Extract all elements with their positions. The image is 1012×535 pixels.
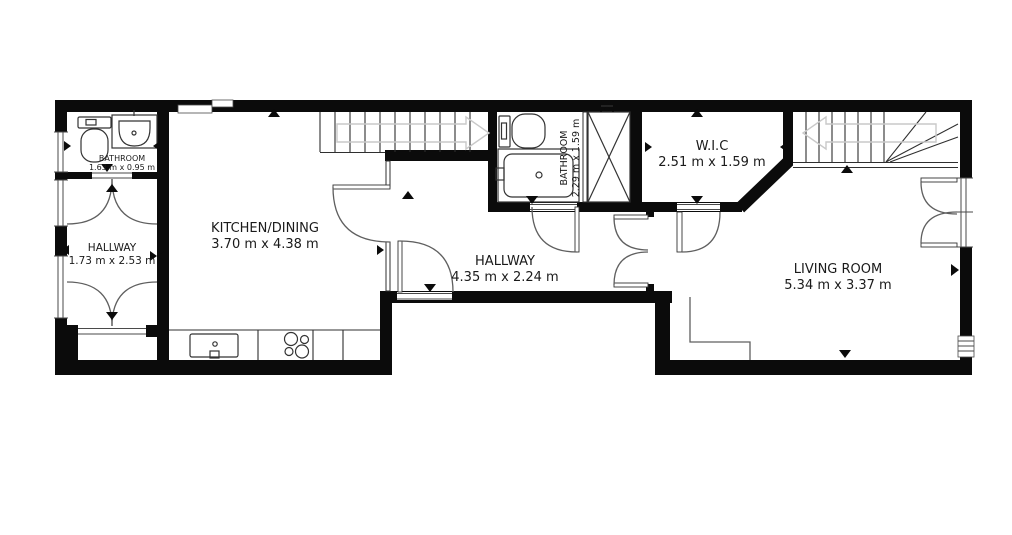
stair-direction-arrow-icon <box>337 117 489 149</box>
threshold <box>957 178 973 247</box>
room-name: LIVING ROOM <box>784 262 891 278</box>
shower-icon <box>588 106 630 202</box>
room-dimensions: 1.73 m x 2.53 m <box>69 255 156 268</box>
door-icon <box>333 185 390 242</box>
stair-direction-arrow-icon <box>803 117 936 149</box>
floor-plan: BATHROOM 1.63 m x 0.95 m HALLWAY 1.73 m … <box>0 0 1012 535</box>
threshold <box>530 203 577 211</box>
french-door-icon <box>921 178 957 247</box>
arrow-down-icon <box>106 312 118 320</box>
window-icon <box>54 132 68 172</box>
kitchen-sink-icon <box>190 334 238 358</box>
dimension-tick-icon <box>377 245 384 255</box>
room-name: HALLWAY <box>451 254 558 270</box>
threshold <box>78 326 146 336</box>
room-label-kitchen: KITCHEN/DINING 3.70 m x 4.38 m <box>211 221 319 254</box>
room-dimensions: 5.34 m x 3.37 m <box>784 278 891 294</box>
threshold <box>677 203 720 211</box>
room-name: KITCHEN/DINING <box>211 221 319 237</box>
arrow-up-icon <box>841 165 853 173</box>
dimension-tick-icon <box>645 142 652 152</box>
room-dimensions: 2.51 m x 1.59 m <box>658 155 765 171</box>
room-label-wic: W.I.C 2.51 m x 1.59 m <box>658 139 765 172</box>
kitchen-counter <box>169 330 380 360</box>
sink-icon <box>112 110 157 148</box>
room-label-hallway1: HALLWAY 1.73 m x 2.53 m <box>69 242 156 268</box>
stove-icon <box>285 333 309 359</box>
room-dimensions: 2.29 m x 1.59 m <box>571 119 583 198</box>
window-icon <box>54 180 68 226</box>
arrow-down-icon <box>424 284 436 292</box>
double-door-icon <box>614 215 648 287</box>
room-name: HALLWAY <box>69 242 156 255</box>
toilet-icon <box>499 114 545 148</box>
threshold <box>92 171 132 180</box>
staircase-right <box>793 112 958 168</box>
door-icon <box>677 212 720 252</box>
room-name: W.I.C <box>658 139 765 155</box>
room-label-bathroom2: BATHROOM 2.29 m x 1.59 m <box>559 119 583 198</box>
room-label-hallway2: HALLWAY 4.35 m x 2.24 m <box>451 254 558 287</box>
door-icon <box>532 207 579 252</box>
staircase-left <box>320 112 489 153</box>
room-label-living: LIVING ROOM 5.34 m x 3.37 m <box>784 262 891 295</box>
arrow-down-icon <box>839 350 851 358</box>
room-name: BATHROOM <box>559 119 571 198</box>
arrow-up-icon <box>106 184 118 192</box>
window-icon <box>958 336 974 357</box>
floor-step <box>690 297 750 360</box>
threshold <box>397 292 452 300</box>
room-label-bathroom1: BATHROOM 1.63 m x 0.95 m <box>89 154 155 172</box>
arrow-up-icon <box>402 191 414 199</box>
room-dimensions: 3.70 m x 4.38 m <box>211 237 319 253</box>
room-name: BATHROOM <box>89 154 155 163</box>
room-dimensions: 1.63 m x 0.95 m <box>89 163 155 172</box>
room-dimensions: 4.35 m x 2.24 m <box>451 270 558 286</box>
window-icon <box>54 256 68 318</box>
arrow-right-icon <box>951 264 959 276</box>
